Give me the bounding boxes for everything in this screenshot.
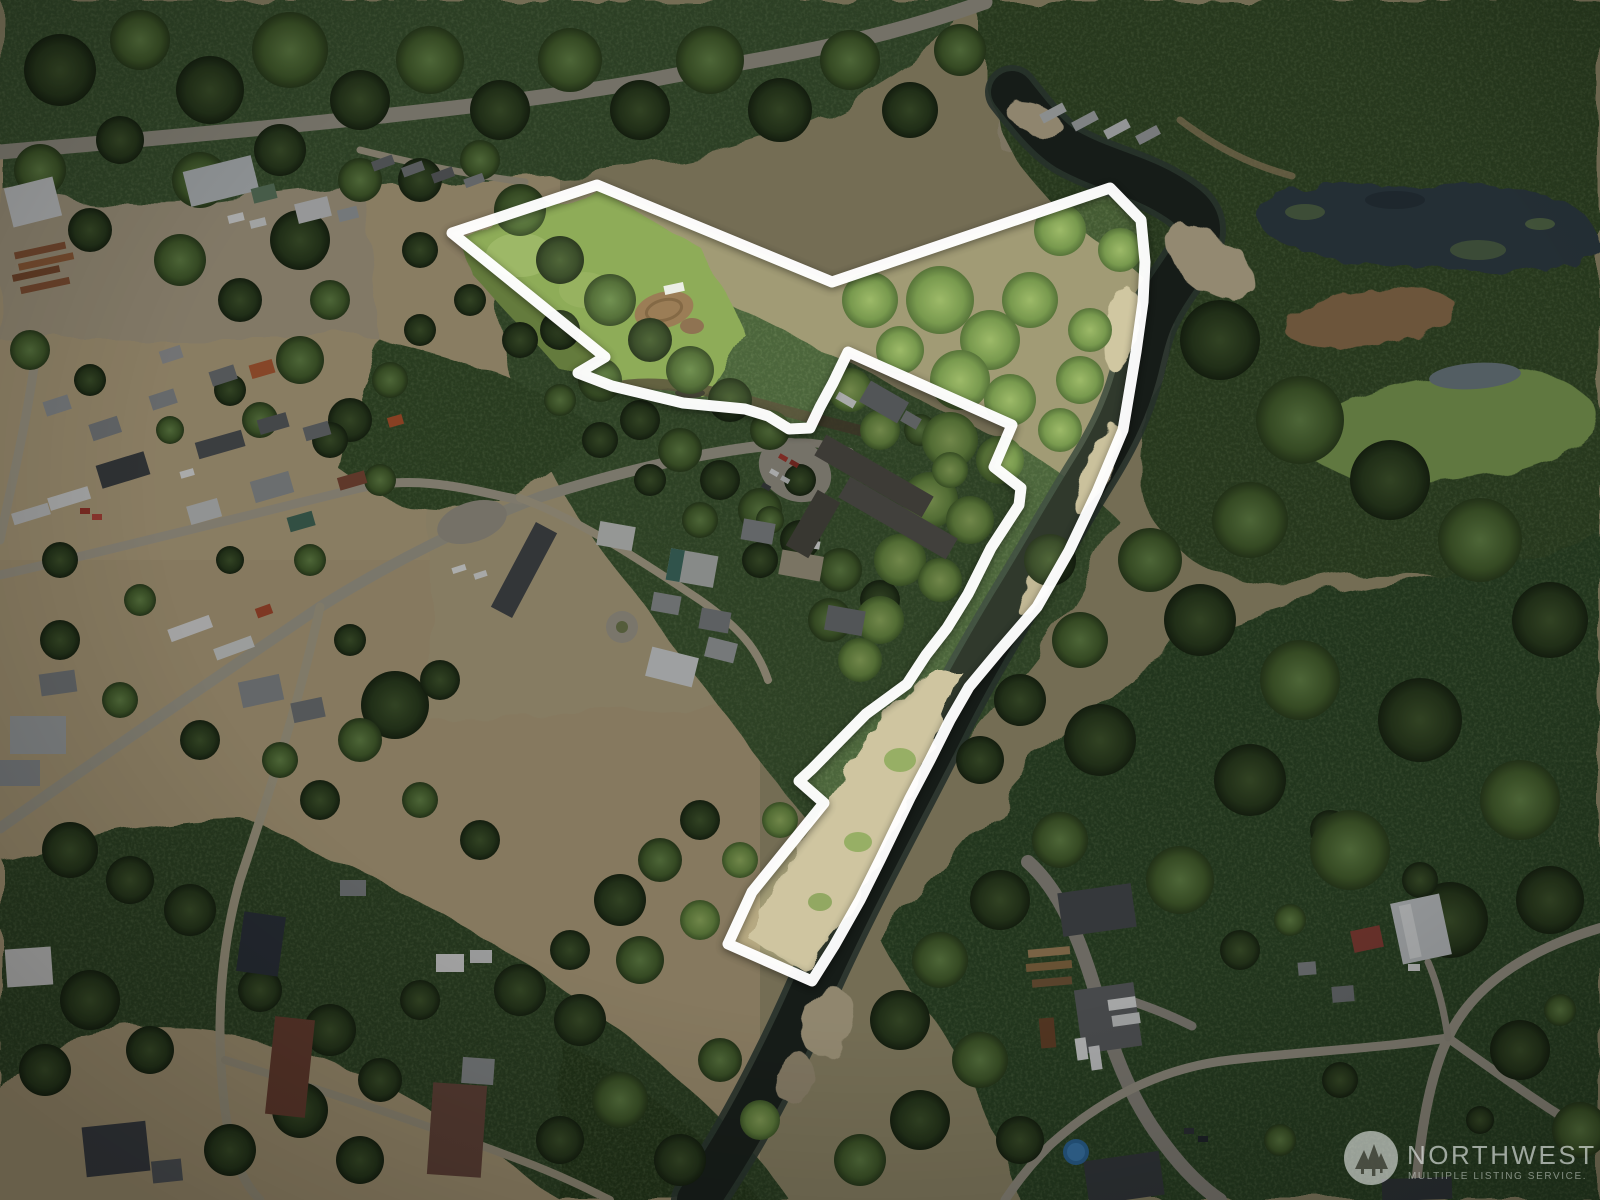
aerial-listing-photo: NORTHWEST MULTIPLE LISTING SERVICE. bbox=[0, 0, 1600, 1200]
watermark-title: NORTHWEST bbox=[1407, 1140, 1597, 1170]
aerial-photo-canvas: NORTHWEST MULTIPLE LISTING SERVICE. bbox=[0, 0, 1600, 1200]
vignette bbox=[0, 0, 1600, 1200]
nwmls-trees-logo-icon bbox=[1344, 1131, 1398, 1185]
watermark-subtitle: MULTIPLE LISTING SERVICE. bbox=[1408, 1171, 1587, 1182]
nwmls-watermark: NORTHWEST MULTIPLE LISTING SERVICE. bbox=[1344, 1131, 1597, 1185]
